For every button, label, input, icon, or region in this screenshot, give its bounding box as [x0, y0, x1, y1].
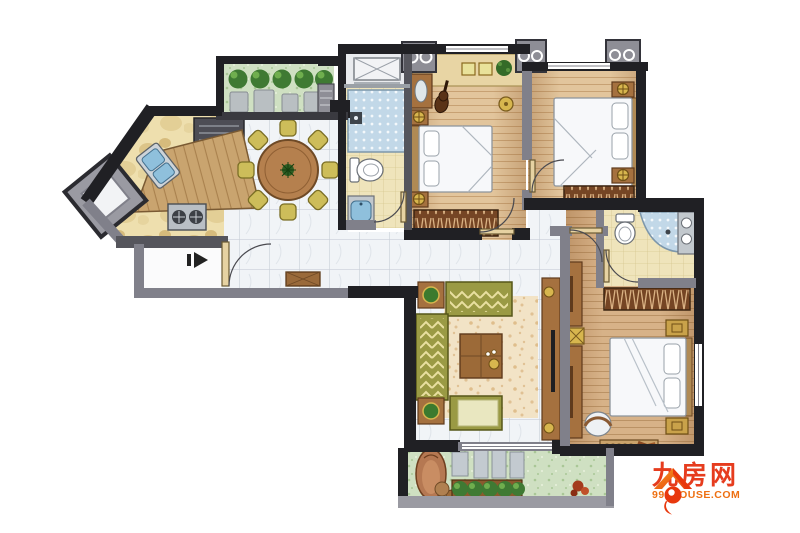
table-centerpiece-plant	[280, 162, 296, 178]
master-window	[695, 344, 702, 406]
balcony-window-wall	[458, 442, 560, 451]
stove	[168, 204, 206, 230]
gold-stool	[568, 328, 584, 344]
bedroom1-window	[446, 46, 508, 52]
nightstand	[666, 418, 688, 434]
wardrobe-mirror	[410, 74, 432, 108]
brand-watermark: 九房网 999HOUSE.COM	[652, 462, 740, 501]
bedroom2-window	[548, 63, 610, 69]
floorplan-drawing	[0, 0, 800, 533]
toilet	[350, 158, 383, 182]
nightstand-lamp	[612, 168, 634, 183]
nightstand	[666, 320, 688, 336]
entry-porch-floor	[142, 246, 222, 290]
chair	[585, 412, 611, 436]
house-logo-icon	[652, 462, 694, 516]
nightstand-lamp	[410, 192, 428, 207]
bed	[410, 126, 492, 192]
floorplan-canvas: 九房网 999HOUSE.COM	[0, 0, 800, 533]
sofa-top	[446, 282, 512, 316]
nightstand-lamp	[410, 110, 428, 125]
ensuite-toilet	[615, 214, 635, 244]
bedroom2	[554, 82, 638, 206]
tv	[551, 330, 555, 392]
side-table-plant	[418, 282, 444, 308]
wardrobe	[604, 288, 690, 310]
deck-mats	[452, 450, 524, 478]
bed	[610, 338, 692, 416]
shoe-cabinet	[286, 272, 320, 286]
planter-dining-wall	[216, 112, 348, 120]
nightstand-lamp	[612, 82, 634, 97]
speaker	[544, 423, 554, 433]
stepping-stone	[435, 482, 449, 496]
speaker	[544, 287, 554, 297]
shower-area	[348, 90, 408, 152]
sofa-left	[416, 314, 448, 400]
tv-console	[542, 278, 560, 440]
coffee-table	[460, 334, 502, 378]
desk-plant	[496, 60, 512, 76]
side-table-plant	[418, 398, 444, 424]
washing-machine	[354, 58, 400, 80]
chaise-bench	[450, 396, 502, 430]
